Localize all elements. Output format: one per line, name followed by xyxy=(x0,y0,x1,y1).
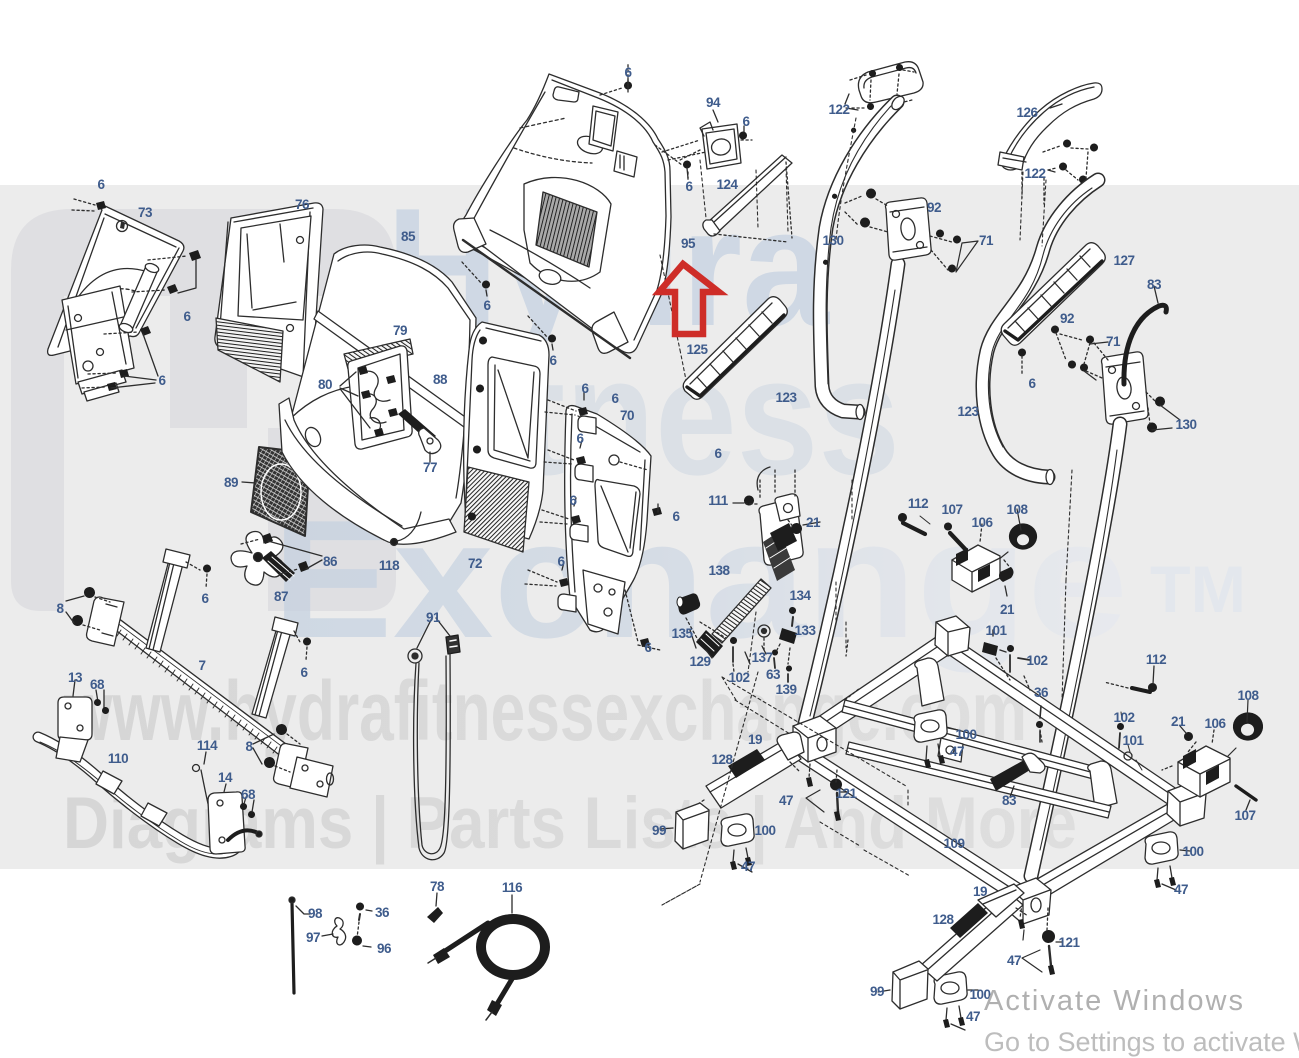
svg-text:6: 6 xyxy=(557,554,565,569)
svg-text:6: 6 xyxy=(183,309,191,324)
svg-text:14: 14 xyxy=(218,770,233,785)
svg-text:96: 96 xyxy=(377,941,392,956)
svg-text:6: 6 xyxy=(549,353,557,368)
svg-text:102: 102 xyxy=(1113,710,1134,725)
svg-text:21: 21 xyxy=(1000,602,1015,617)
svg-text:47: 47 xyxy=(1007,953,1021,968)
svg-text:7: 7 xyxy=(198,658,205,673)
svg-text:139: 139 xyxy=(775,682,796,697)
svg-text:100: 100 xyxy=(754,823,775,838)
svg-text:108: 108 xyxy=(1237,688,1259,703)
svg-text:47: 47 xyxy=(741,859,755,874)
svg-text:123: 123 xyxy=(775,390,797,405)
svg-text:88: 88 xyxy=(433,372,448,387)
svg-text:114: 114 xyxy=(197,738,218,753)
svg-text:6: 6 xyxy=(624,65,632,80)
svg-text:134: 134 xyxy=(789,588,811,603)
svg-text:92: 92 xyxy=(927,200,941,215)
svg-text:36: 36 xyxy=(1034,685,1049,700)
svg-text:99: 99 xyxy=(870,984,884,999)
svg-text:118: 118 xyxy=(379,558,400,573)
svg-text:77: 77 xyxy=(423,460,437,475)
svg-text:6: 6 xyxy=(581,381,589,396)
svg-text:6: 6 xyxy=(672,509,680,524)
svg-text:124: 124 xyxy=(716,177,738,192)
svg-text:Go to Settings to activate Win: Go to Settings to activate Wind xyxy=(984,1027,1299,1057)
svg-text:6: 6 xyxy=(1028,376,1036,391)
svg-text:101: 101 xyxy=(985,623,1007,638)
svg-text:72: 72 xyxy=(468,556,482,571)
svg-text:98: 98 xyxy=(308,906,323,921)
svg-text:126: 126 xyxy=(1016,105,1038,120)
svg-text:73: 73 xyxy=(138,205,153,220)
svg-text:101: 101 xyxy=(1122,733,1144,748)
svg-text:111: 111 xyxy=(708,493,729,508)
svg-text:6: 6 xyxy=(685,179,693,194)
svg-text:87: 87 xyxy=(274,589,288,604)
svg-text:83: 83 xyxy=(1002,793,1017,808)
svg-text:68: 68 xyxy=(241,787,256,802)
svg-text:116: 116 xyxy=(502,880,523,895)
svg-text:122: 122 xyxy=(828,102,849,117)
svg-text:TM: TM xyxy=(1150,552,1246,626)
svg-text:127: 127 xyxy=(1113,253,1134,268)
svg-text:63: 63 xyxy=(766,667,781,682)
svg-text:92: 92 xyxy=(1060,311,1074,326)
svg-text:100: 100 xyxy=(1182,844,1203,859)
svg-text:107: 107 xyxy=(941,502,962,517)
svg-text:128: 128 xyxy=(932,912,954,927)
svg-text:47: 47 xyxy=(1174,882,1188,897)
svg-text:95: 95 xyxy=(681,236,696,251)
svg-text:109: 109 xyxy=(943,836,964,851)
svg-text:76: 76 xyxy=(295,197,310,212)
svg-text:6: 6 xyxy=(714,446,722,461)
svg-text:21: 21 xyxy=(806,515,821,530)
svg-text:106: 106 xyxy=(1204,716,1226,731)
svg-text:130: 130 xyxy=(822,233,843,248)
svg-text:8: 8 xyxy=(56,601,64,616)
svg-text:121: 121 xyxy=(835,786,857,801)
svg-text:6: 6 xyxy=(300,665,308,680)
svg-text:86: 86 xyxy=(323,554,338,569)
svg-text:6: 6 xyxy=(742,114,750,129)
svg-text:107: 107 xyxy=(1234,808,1255,823)
svg-text:79: 79 xyxy=(393,323,407,338)
svg-text:129: 129 xyxy=(689,654,710,669)
svg-text:122: 122 xyxy=(1024,166,1045,181)
svg-text:102: 102 xyxy=(728,670,749,685)
svg-text:83: 83 xyxy=(1147,277,1162,292)
svg-text:6: 6 xyxy=(483,298,491,313)
svg-text:6: 6 xyxy=(576,431,584,446)
svg-text:135: 135 xyxy=(671,626,693,641)
svg-text:133: 133 xyxy=(794,623,816,638)
svg-text:138: 138 xyxy=(708,563,730,578)
svg-text:21: 21 xyxy=(1171,714,1186,729)
svg-text:97: 97 xyxy=(306,930,320,945)
svg-text:13: 13 xyxy=(68,670,83,685)
svg-text:108: 108 xyxy=(1006,502,1028,517)
svg-text:100: 100 xyxy=(955,727,976,742)
svg-text:6: 6 xyxy=(644,640,652,655)
svg-text:110: 110 xyxy=(108,751,128,766)
svg-text:6: 6 xyxy=(97,177,105,192)
svg-text:123: 123 xyxy=(957,404,979,419)
svg-text:102: 102 xyxy=(1026,653,1047,668)
svg-text:8: 8 xyxy=(245,739,253,754)
svg-text:85: 85 xyxy=(401,229,416,244)
svg-text:71: 71 xyxy=(1106,334,1121,349)
svg-text:6: 6 xyxy=(158,373,166,388)
svg-text:89: 89 xyxy=(224,475,238,490)
svg-text:112: 112 xyxy=(908,496,928,511)
svg-text:6: 6 xyxy=(569,493,577,508)
svg-text:6: 6 xyxy=(611,391,619,406)
svg-text:36: 36 xyxy=(375,905,390,920)
svg-text:47: 47 xyxy=(966,1009,980,1024)
svg-text:80: 80 xyxy=(318,377,332,392)
svg-text:94: 94 xyxy=(706,95,721,110)
svg-text:70: 70 xyxy=(620,408,634,423)
svg-text:19: 19 xyxy=(748,732,762,747)
svg-text:130: 130 xyxy=(1175,417,1196,432)
svg-text:19: 19 xyxy=(973,884,987,899)
svg-text:68: 68 xyxy=(90,677,105,692)
svg-text:47: 47 xyxy=(779,793,793,808)
svg-text:128: 128 xyxy=(711,752,733,767)
svg-text:99: 99 xyxy=(652,823,666,838)
svg-text:106: 106 xyxy=(971,515,993,530)
svg-text:47: 47 xyxy=(950,744,964,759)
svg-text:112: 112 xyxy=(1146,652,1166,667)
svg-text:137: 137 xyxy=(751,650,772,665)
svg-text:125: 125 xyxy=(686,342,708,357)
svg-text:121: 121 xyxy=(1058,935,1080,950)
svg-text:91: 91 xyxy=(426,610,441,625)
svg-text:6: 6 xyxy=(201,591,209,606)
svg-text:71: 71 xyxy=(979,233,994,248)
svg-text:78: 78 xyxy=(430,879,445,894)
